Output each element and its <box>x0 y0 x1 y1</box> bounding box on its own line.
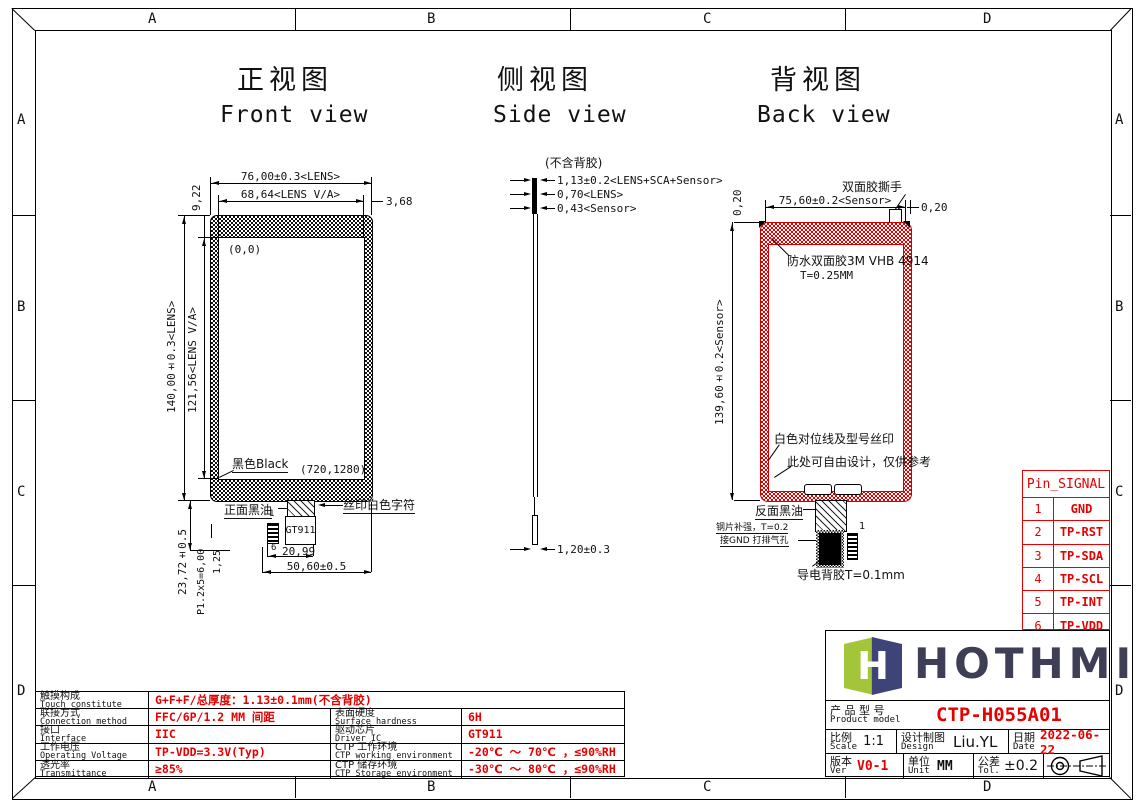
leader-line <box>323 505 343 506</box>
front-fpc-pins <box>267 523 279 544</box>
leader-line <box>278 508 287 509</box>
spec-value: -30℃ ～ 80℃ ，≤90%RH <box>461 761 624 778</box>
arrowhead <box>188 500 192 509</box>
pin-signal: TP-RST <box>1054 521 1109 543</box>
front-driver-ic-box: GT911 <box>285 516 316 545</box>
back-view-title-zh: 背视图 <box>770 58 866 97</box>
leader-line <box>545 208 555 209</box>
spec-label: CTP 工作环境CTP working environment <box>330 744 461 760</box>
zone-divider <box>295 8 296 30</box>
back-tape-label-1: 防水双面胶3M VHB 4914 <box>787 252 929 269</box>
zone-letter: D <box>17 683 25 699</box>
extension-line <box>734 222 760 223</box>
front-silkscreen-label: 丝印白色字符 <box>343 496 415 514</box>
spec-label-en: Transmittance <box>40 770 148 778</box>
back-steel-plate <box>819 533 841 565</box>
arrowhead <box>730 222 734 231</box>
side-view-title-zh: 侧视图 <box>497 58 593 97</box>
zone-letter: C <box>17 484 25 500</box>
projection-symbol-cell <box>1043 754 1109 778</box>
pin-signal-table: Pin_SIGNAL 1GND 2TP-RST 3TP-SDA 4TP-SCL … <box>1022 470 1110 630</box>
zone-divider <box>295 777 296 798</box>
arrowhead <box>267 554 276 558</box>
dim-side-fpc: 1,20±0.3 <box>557 543 610 556</box>
version-label-en: Ver <box>830 767 852 776</box>
arrowhead <box>182 493 186 502</box>
spec-value: FFC/6P/1.2 MM 间距 <box>148 709 330 725</box>
extension-line <box>198 237 218 238</box>
pin-signal: GND <box>1054 498 1109 520</box>
pin-row: 1GND <box>1023 498 1109 521</box>
scale-value: 1:1 <box>863 734 884 749</box>
unit-label-en: Unit <box>908 767 930 776</box>
info-row-2: 版本Ver V0-1 单位Unit MM 公差Tol. ±0.2 <box>826 754 1109 778</box>
pin-row: 3TP-SDA <box>1023 545 1109 568</box>
spec-value: GT911 <box>461 726 624 742</box>
dim-line-front-va-height <box>204 237 205 478</box>
zone-letter: A <box>17 112 25 128</box>
version-label: 版本Ver <box>826 756 852 776</box>
dim-line-top-margin <box>204 215 205 237</box>
design-label-en: Design <box>901 743 945 752</box>
back-white-marks-label: 白色对位线及型号丝印 <box>774 430 894 447</box>
spec-label: CTP 储存环境CTP Storage environment <box>330 761 461 778</box>
back-tab-label: 双面胶撕手 <box>842 178 902 195</box>
front-ink-label: 正面黑油 <box>224 501 272 519</box>
spec-label: 工作电压Operating Voltage <box>36 744 148 760</box>
spec-label: 联接方式Connection method <box>36 709 148 725</box>
zone-letter: B <box>427 11 435 27</box>
dim-line-front-va-width <box>218 201 363 202</box>
dim-front-height: 140,00±0.3<LENS> <box>165 287 178 427</box>
tolerance-value: ±0.2 <box>1004 758 1038 774</box>
zone-letter: B <box>17 299 25 315</box>
dim-line-front-height <box>184 215 185 500</box>
spec-label: 表面硬度Surface hardness <box>330 709 461 725</box>
zone-letter: A <box>1115 112 1123 128</box>
zone-divider <box>1110 400 1131 401</box>
front-view-title-en: Front view <box>220 102 368 128</box>
back-conductive-label: 导电背胶T=0.1mm <box>797 566 905 583</box>
date-label-en: Date <box>1013 743 1035 752</box>
zone-letter: D <box>983 779 991 795</box>
front-view-title-zh: 正视图 <box>237 58 333 97</box>
zone-divider <box>1110 585 1131 586</box>
scale-label: 比例Scale <box>826 732 857 752</box>
zone-divider <box>570 8 571 30</box>
back-ink-hatch <box>815 500 847 532</box>
side-profile-top <box>532 178 537 214</box>
drawing-sheet: A B C D A B C D A B C D A B C D 正视图 Fron… <box>0 0 1144 811</box>
extension-line <box>371 502 372 572</box>
spec-value: ≥85% <box>148 761 330 778</box>
pin-number: 5 <box>1023 591 1054 613</box>
zone-letter: D <box>983 11 991 27</box>
pin-signal: TP-INT <box>1054 591 1109 613</box>
zone-letter: C <box>703 11 711 27</box>
back-view-title-en: Back view <box>757 102 891 128</box>
unit-label: 单位Unit <box>904 756 930 776</box>
zone-letter: C <box>703 779 711 795</box>
hothmi-logo-icon: H <box>844 637 902 695</box>
pin-row: 4TP-SCL <box>1023 568 1109 591</box>
spec-label: 接口Interface <box>36 726 148 742</box>
scale-label-en: Scale <box>830 743 857 752</box>
arrowhead <box>202 471 206 480</box>
unit-cell: 单位Unit MM <box>903 754 973 778</box>
dim-line-back-height <box>732 222 733 500</box>
extension-line <box>905 200 906 223</box>
leader-line <box>545 194 555 195</box>
product-model-label: 产 品 型 号 Product model <box>826 701 936 729</box>
side-profile-fpc <box>532 515 538 545</box>
spec-value: -20℃ ～ 70℃ ，≤90%RH <box>461 744 624 760</box>
spec-row: 联接方式Connection method FFC/6P/1.2 MM 间距 表… <box>36 709 624 726</box>
zone-divider <box>845 777 846 798</box>
spec-label-en: Operating Voltage <box>40 752 148 760</box>
date-label-zh: 日期 <box>1013 732 1035 743</box>
spec-value: G+F+F/总厚度：1.13±0.1mm(不含背胶) <box>148 692 624 708</box>
dim-pin-width: 1,25 <box>212 545 223 579</box>
dim-back-height: 139,60±0.2<Sensor> <box>713 295 726 430</box>
dim-back-corner-right: 0,20 <box>921 201 948 214</box>
arrowhead <box>202 237 206 246</box>
pin-row: 2TP-RST <box>1023 521 1109 544</box>
arrowhead <box>730 493 734 502</box>
back-tape-label-2: T=0.25MM <box>800 269 853 282</box>
version-value: V0-1 <box>857 759 888 774</box>
side-profile-body <box>533 214 538 497</box>
spec-value: 6H <box>461 709 624 725</box>
spec-value: TP-VDD=3.3V(Typ) <box>148 744 330 760</box>
spec-label: 驱动芯片Driver IC <box>330 726 461 742</box>
pin-number: 1 <box>1023 498 1054 520</box>
pin-signal: TP-SCL <box>1054 568 1109 590</box>
brand-name: HOTHMI <box>914 639 1136 688</box>
product-model-value: CTP-H055A01 <box>936 701 1109 729</box>
back-white-mark <box>804 484 832 495</box>
back-ink-label: 反面黑油 <box>755 502 803 520</box>
back-white-mark <box>834 484 862 495</box>
product-label-en: Product model <box>830 716 936 725</box>
spec-row: 透光率Transmittance ≥85% CTP 储存环境CTP Storag… <box>36 761 624 778</box>
dim-side-lens: 0,70<LENS> <box>557 188 623 201</box>
spec-label-en: CTP Storage environment <box>335 770 461 778</box>
dim-tail-length: 23,72±0.5 <box>176 516 189 608</box>
dim-line-front-width <box>210 183 371 184</box>
front-bezel-color-label: 黑色Black <box>232 455 288 473</box>
date-value: 2022-06-22 <box>1040 727 1109 757</box>
pin-number: 2 <box>1023 521 1054 543</box>
dim-front-top-margin: 9,22 <box>190 180 203 216</box>
dim-line-back-width <box>765 207 905 208</box>
zone-divider <box>12 215 35 216</box>
zone-divider <box>570 777 571 798</box>
leader-line <box>545 180 555 181</box>
dim-side-total: 1,13±0.2<LENS+SCA+Sensor> <box>557 174 723 187</box>
dim-back-width: 75,60±0.2<Sensor> <box>765 194 905 207</box>
tolerance-label: 公差Tol. <box>974 756 1000 776</box>
spec-label: 触摸构成Touch constitute <box>36 692 148 708</box>
back-fpc-pins <box>847 533 858 560</box>
back-pin1-label: 1 <box>859 521 865 532</box>
back-steel-label-2: 接GND 打排气孔 <box>720 533 789 547</box>
design-cell: 设计制图Design Liu.YL <box>896 730 1008 753</box>
arrowhead <box>524 547 533 551</box>
back-free-design-label: 此处可自由设计，仅供参考 <box>787 453 931 470</box>
leader-line <box>798 540 816 541</box>
front-origin-label: (0,0) <box>228 243 261 256</box>
date-label: 日期Date <box>1009 732 1035 752</box>
zone-letter: B <box>427 779 435 795</box>
zone-letter: B <box>1115 299 1123 315</box>
spec-row: 触摸构成Touch constitute G+F+F/总厚度：1.13±0.1m… <box>36 692 624 709</box>
spec-value: IIC <box>148 726 330 742</box>
leader-line <box>803 509 815 510</box>
zone-letter: A <box>148 11 156 27</box>
version-cell: 版本Ver V0-1 <box>826 754 903 778</box>
front-pin6-label: 6 <box>271 543 276 553</box>
pin-table-header: Pin_SIGNAL <box>1023 471 1109 498</box>
date-cell: 日期Date 2022-06-22 <box>1008 730 1109 753</box>
design-label: 设计制图Design <box>897 732 945 752</box>
dim-line-pin-pitch <box>211 524 212 538</box>
pin-signal: TP-SDA <box>1054 545 1109 567</box>
spec-table: 触摸构成Touch constitute G+F+F/总厚度：1.13±0.1m… <box>35 691 625 777</box>
extension-line <box>198 478 218 479</box>
side-note: (不含背胶) <box>545 154 602 171</box>
zone-divider <box>1110 215 1131 216</box>
extension-line <box>734 500 760 501</box>
logo-letter: H <box>844 637 902 695</box>
dim-front-va-width: 68,64<LENS V/A> <box>218 188 363 201</box>
pin-row: 5TP-INT <box>1023 591 1109 614</box>
zone-divider <box>12 400 35 401</box>
zone-divider <box>845 8 846 30</box>
dim-front-width: 76,00±0.3<LENS> <box>210 170 371 183</box>
driver-ic-label: GT911 <box>285 525 315 536</box>
dim-front-va-height: 121,56<LENS V/A> <box>186 300 199 420</box>
arrowhead <box>182 215 186 224</box>
dim-line-side-margin <box>371 201 383 202</box>
dim-side-sensor: 0,43<Sensor> <box>557 202 636 215</box>
back-steel-label-1: 钢片补强，T=0.2 <box>716 520 788 534</box>
dim-pin-pitch: P1.2x5=6,00 <box>196 548 207 616</box>
front-active-area <box>218 237 365 480</box>
spec-row: 接口Interface IIC 驱动芯片Driver IC GT911 <box>36 726 624 743</box>
side-profile-join <box>534 497 535 515</box>
front-resolution-label: (720,1280) <box>300 463 366 476</box>
leader-line <box>545 549 555 550</box>
scale-label-zh: 比例 <box>830 732 857 743</box>
dim-ic-offset: 20,99 <box>282 545 315 558</box>
unit-value: MM <box>937 759 953 774</box>
spec-row: 工作电压Operating Voltage TP-VDD=3.3V(Typ) C… <box>36 744 624 761</box>
zone-letter: C <box>1115 484 1123 500</box>
info-row-1: 比例Scale 1:1 设计制图Design Liu.YL 日期Date 202… <box>826 730 1109 754</box>
pin-number: 4 <box>1023 568 1054 590</box>
zone-divider <box>12 585 35 586</box>
projection-symbol-icon <box>1046 754 1108 778</box>
pin-number: 3 <box>1023 545 1054 567</box>
logo-row: H HOTHMI <box>826 631 1109 701</box>
tolerance-cell: 公差Tol. ±0.2 <box>973 754 1043 778</box>
title-block: H HOTHMI 产 品 型 号 Product model CTP-H055A… <box>825 630 1110 777</box>
dim-tail-width: 50,60±0.5 <box>262 560 371 573</box>
dim-front-side-margin: 3,68 <box>386 195 413 208</box>
zone-letter: A <box>148 779 156 795</box>
design-label-zh: 设计制图 <box>901 732 945 743</box>
side-view-title-en: Side view <box>493 102 627 128</box>
spec-label: 透光率Transmittance <box>36 761 148 778</box>
back-steel-frame <box>816 530 844 568</box>
leader-line <box>907 207 919 208</box>
designer-value: Liu.YL <box>953 733 997 751</box>
tolerance-label-en: Tol. <box>978 767 1000 776</box>
spec-label-en: CTP working environment <box>335 752 461 760</box>
dim-back-corner-left: 0,20 <box>731 186 744 220</box>
scale-cell: 比例Scale 1:1 <box>826 730 896 753</box>
